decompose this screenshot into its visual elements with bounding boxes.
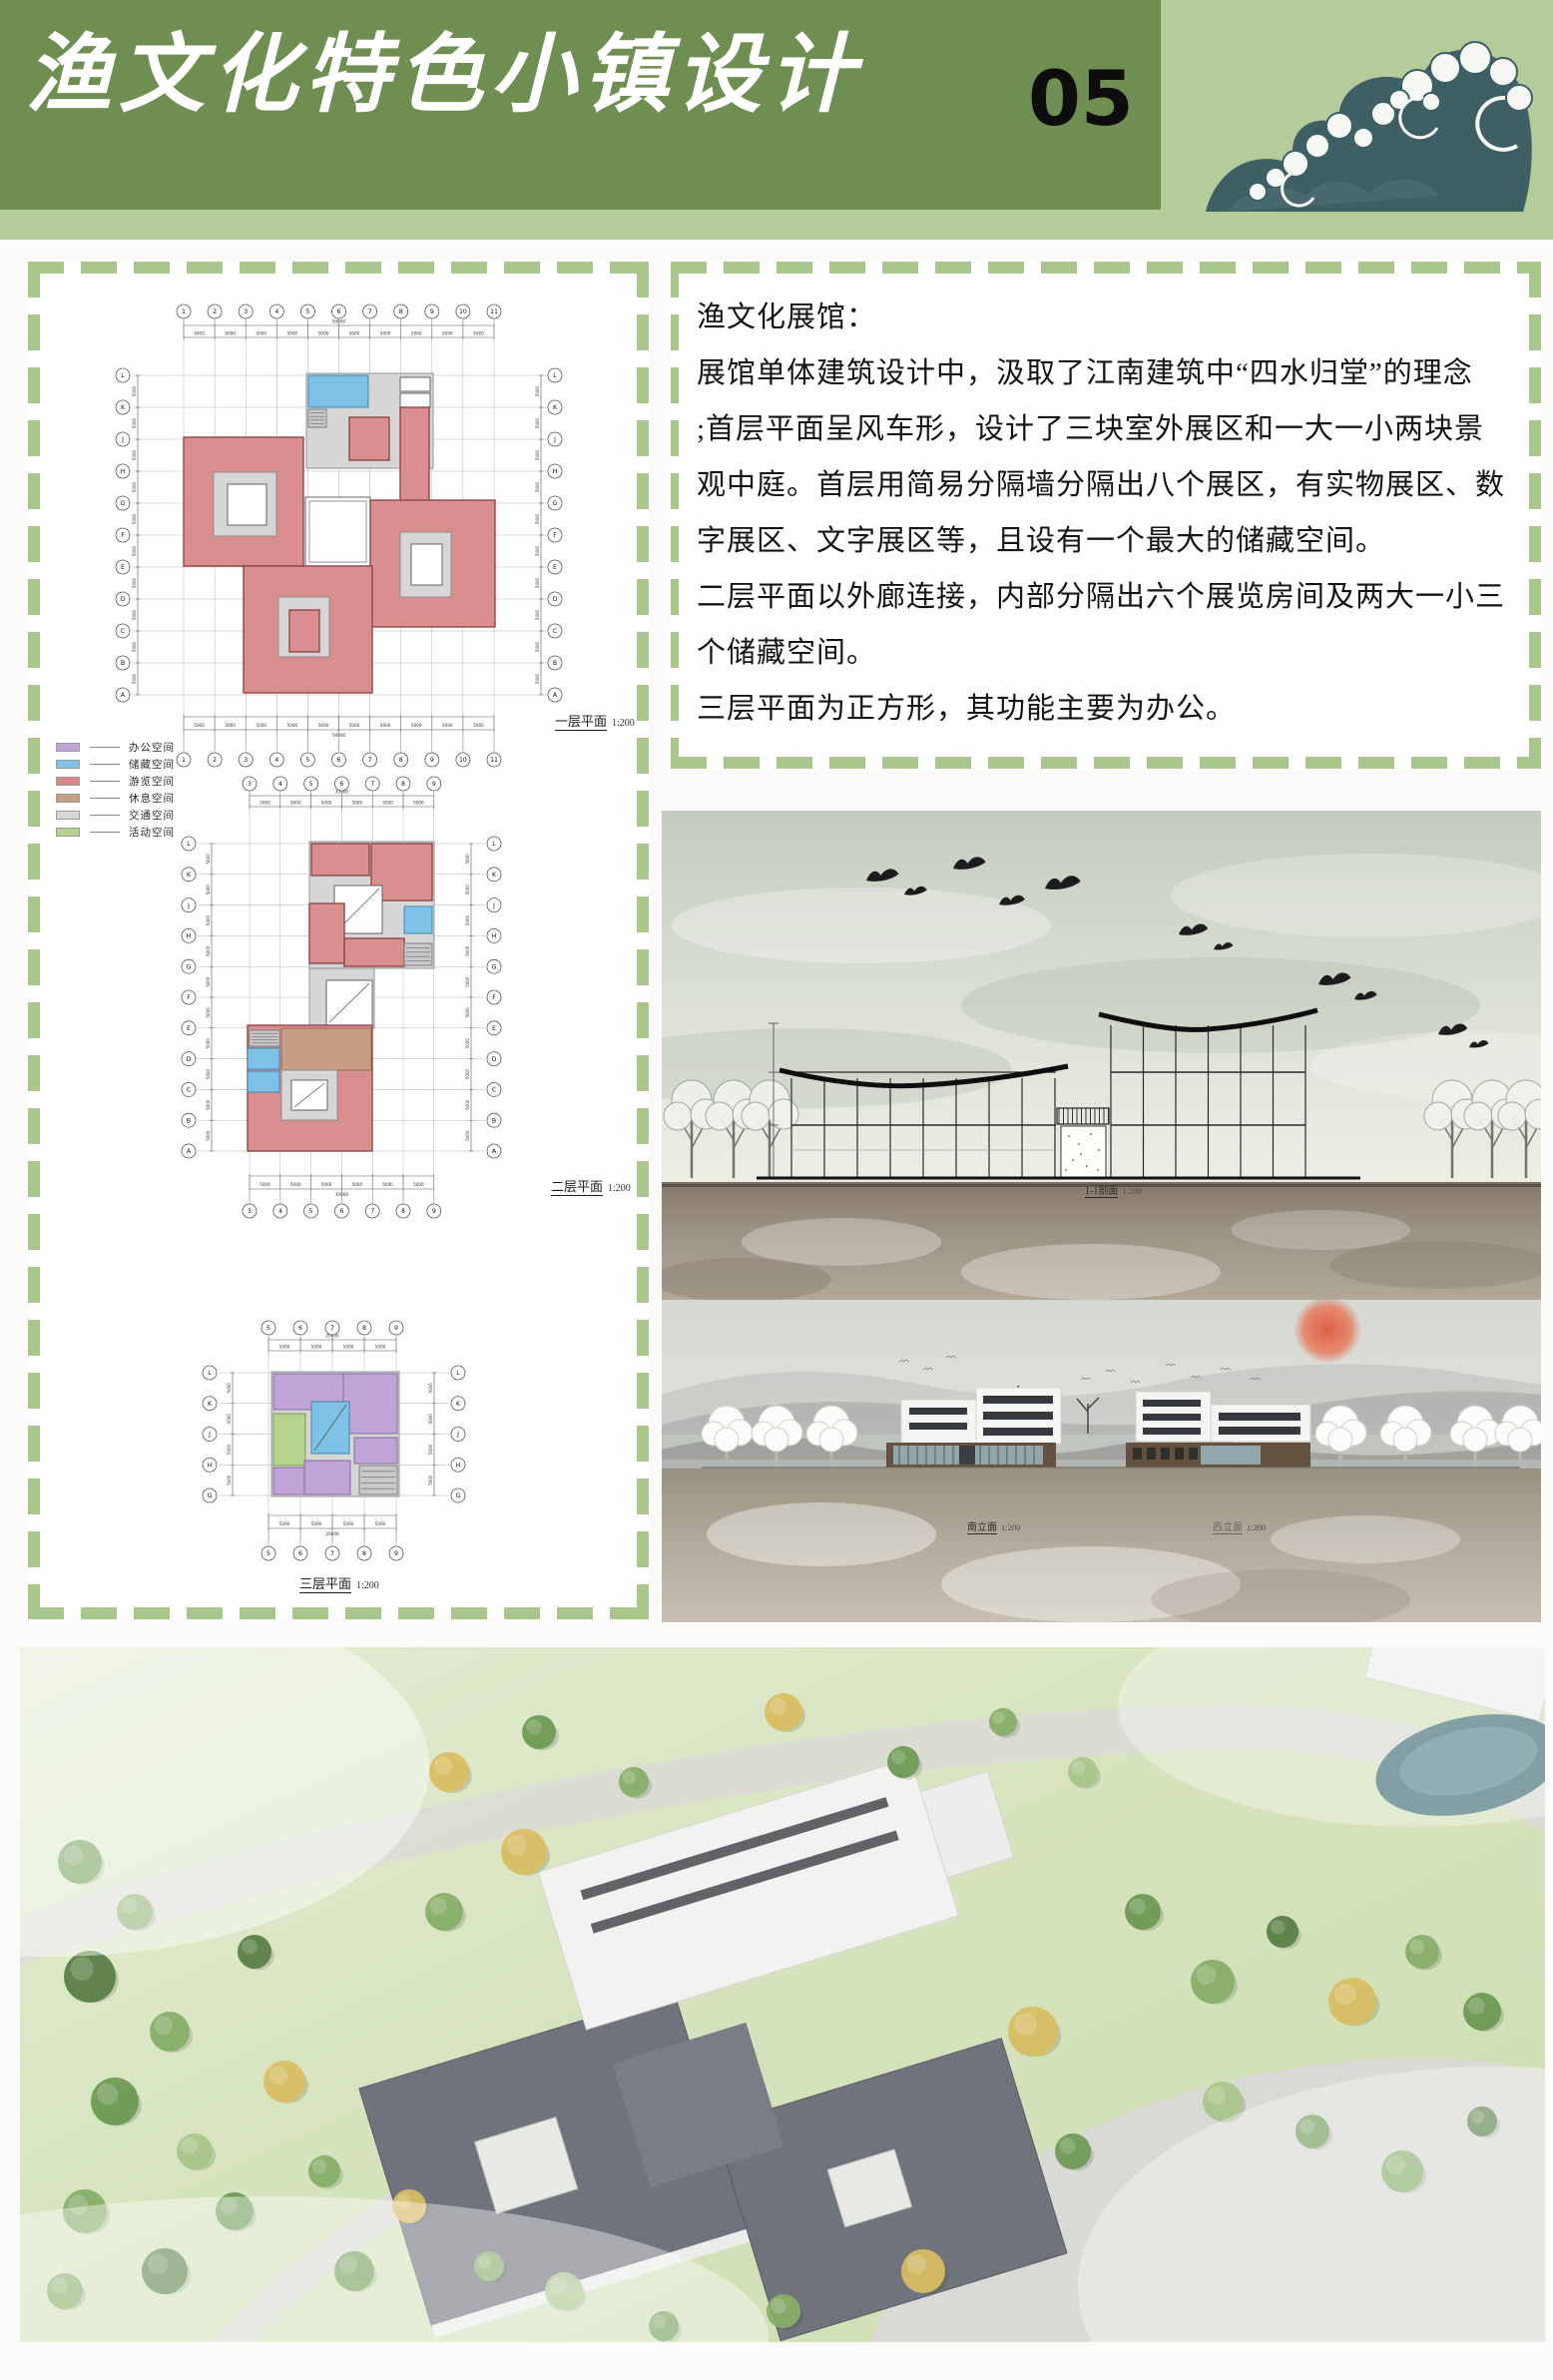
svg-text:5000: 5000 [132,417,137,428]
description-line: 字展区、文字展区等，且设有一个最大的储藏空间。 [697,513,1529,569]
plan-legend: 办公空间 储藏空间 游览空间 休息空间 交通空间 活动空间 [56,739,175,841]
svg-text:5000: 5000 [321,1182,332,1187]
svg-text:5: 5 [309,1208,313,1215]
svg-text:5000: 5000 [382,1182,393,1187]
svg-text:8: 8 [399,308,403,315]
svg-text:G: G [492,963,497,970]
svg-text:J: J [553,436,556,443]
aerial-rendering [20,1647,1545,2342]
svg-text:7: 7 [330,1325,334,1332]
west-elevation-caption: 西立面1:200 [1213,1518,1266,1533]
svg-text:B: B [121,660,125,667]
svg-text:E: E [187,1025,191,1032]
svg-text:5000: 5000 [279,1345,290,1350]
svg-text:5000: 5000 [132,545,137,556]
svg-text:L: L [208,1370,212,1377]
svg-text:4: 4 [274,308,278,315]
svg-text:6: 6 [298,1550,302,1557]
svg-text:B: B [187,1117,191,1124]
svg-text:5000: 5000 [206,1099,211,1110]
svg-text:5000: 5000 [227,1383,232,1394]
svg-text:5: 5 [266,1550,270,1557]
legend-line [90,764,120,765]
description-line: 观中庭。首层用简易分隔墙分隔出八个展区，有实物展区、数 [697,457,1529,513]
svg-text:5: 5 [266,1325,270,1332]
svg-text:D: D [492,1056,497,1063]
svg-text:6: 6 [339,781,343,788]
svg-text:8: 8 [362,1325,366,1332]
svg-text:4: 4 [278,1208,282,1215]
svg-text:B: B [553,660,557,667]
plan3-caption: 三层平面1:200 [299,1573,379,1592]
svg-text:5000: 5000 [256,331,266,336]
legend-label: 办公空间 [129,740,175,755]
svg-text:5000: 5000 [375,1345,386,1350]
facade-rendering: 南立面1:200 西立面1:200 [662,1300,1541,1622]
svg-text:5000: 5000 [343,1345,354,1350]
legend-item: 游览空间 [56,773,175,790]
svg-text:5000: 5000 [442,331,453,336]
svg-text:5000: 5000 [535,545,540,556]
svg-text:5000: 5000 [132,481,137,492]
description-line: ;首层平面呈风车形，设计了三块室外展区和一大一小两块景 [697,401,1529,457]
legend-swatch [56,811,80,820]
section-rendering: 1-1剖面1:200 [662,811,1541,1300]
svg-text:5000: 5000 [287,723,298,728]
panel-border-top [671,262,1541,274]
svg-text:5000: 5000 [535,481,540,492]
page-number: 05 [1028,54,1134,143]
legend-swatch [56,743,80,752]
svg-text:8: 8 [401,1208,405,1215]
svg-text:5: 5 [305,308,309,315]
description-line: 展馆单体建筑设计中，汲取了江南建筑中“四水归堂”的理念 [697,345,1529,401]
svg-text:3: 3 [248,1208,252,1215]
svg-text:5000: 5000 [413,801,424,806]
svg-text:5000: 5000 [380,723,391,728]
svg-text:5000: 5000 [132,641,137,652]
svg-text:5000: 5000 [132,609,137,620]
legend-swatch [56,794,80,803]
section-caption: 1-1剖面1:200 [1085,1182,1142,1197]
svg-text:5000: 5000 [349,331,360,336]
svg-text:9: 9 [430,308,434,315]
description-text: 渔文化展馆： 展馆单体建筑设计中，汲取了江南建筑中“四水归堂”的理念 ;首层平面… [697,290,1529,737]
svg-text:C: C [553,628,557,635]
svg-text:5000: 5000 [132,513,137,524]
svg-text:5000: 5000 [132,673,137,684]
svg-text:5000: 5000 [535,609,540,620]
svg-text:5000: 5000 [206,885,211,895]
svg-text:9: 9 [394,1550,398,1557]
svg-text:5000: 5000 [259,801,270,806]
legend-item: 休息空间 [56,790,175,807]
svg-text:7: 7 [370,781,374,788]
svg-text:5000: 5000 [227,1444,232,1455]
svg-text:5000: 5000 [535,417,540,428]
svg-text:D: D [553,596,558,603]
svg-text:7: 7 [330,1550,334,1557]
legend-line [90,832,120,833]
svg-text:H: H [121,468,126,475]
svg-text:5000: 5000 [206,976,211,987]
legend-swatch [56,828,80,837]
panel-border-left [671,262,679,769]
description-line: 三层平面为正方形，其功能主要为办公。 [697,681,1529,737]
svg-text:5000: 5000 [287,331,298,336]
svg-text:6: 6 [298,1325,302,1332]
legend-item: 活动空间 [56,824,175,841]
svg-text:5000: 5000 [321,801,332,806]
svg-text:G: G [456,1492,461,1499]
legend-line [90,798,120,799]
panel-border-bottom [671,757,1541,769]
svg-text:5000: 5000 [227,1414,232,1425]
svg-text:H: H [187,933,192,940]
svg-text:5000: 5000 [206,1038,211,1049]
svg-text:9: 9 [432,1208,436,1215]
floor-plan-level1: 5000500050005000500050005000500050005000… [92,268,636,772]
svg-text:5000: 5000 [535,449,540,460]
svg-text:J: J [208,1432,211,1439]
svg-text:E: E [553,564,557,571]
legend-line [90,747,120,748]
svg-text:5000: 5000 [206,854,211,865]
svg-text:5000: 5000 [206,914,211,925]
svg-text:5000: 5000 [132,449,137,460]
panel-border-right [1529,262,1541,769]
svg-text:5000: 5000 [227,1475,232,1486]
wave-illustration-icon [1188,6,1537,218]
description-title: 渔文化展馆： [697,290,1529,345]
svg-text:5000: 5000 [413,1182,424,1187]
legend-swatch [56,760,80,769]
svg-text:5000: 5000 [465,854,470,865]
svg-text:10: 10 [459,308,467,315]
svg-text:5000: 5000 [382,801,393,806]
svg-text:D: D [121,596,126,603]
svg-text:F: F [121,532,125,539]
svg-text:4: 4 [278,781,282,788]
legend-label: 游览空间 [129,774,175,789]
svg-text:5000: 5000 [206,1068,211,1079]
description-line: 二层平面以外廊连接，内部分隔出六个展览房间及两大一小三 [697,569,1529,625]
svg-text:7: 7 [368,308,372,315]
svg-text:5000: 5000 [535,385,540,396]
panel-border-left [28,262,40,1619]
svg-text:5000: 5000 [351,1182,362,1187]
svg-text:5000: 5000 [465,1099,470,1110]
svg-text:H: H [456,1462,461,1469]
svg-text:9: 9 [432,781,436,788]
plan1-caption: 一层平面1:200 [555,711,635,730]
svg-text:5000: 5000 [206,1130,211,1141]
svg-text:5000: 5000 [318,331,329,336]
svg-text:8: 8 [362,1550,366,1557]
svg-text:J: J [121,436,124,443]
svg-text:2: 2 [213,308,217,315]
svg-text:F: F [187,994,191,1001]
panel-border-right [637,262,649,1619]
svg-text:9: 9 [394,1325,398,1332]
svg-text:5000: 5000 [465,945,470,956]
svg-text:5000: 5000 [535,673,540,684]
svg-text:G: G [553,500,558,507]
svg-text:B: B [492,1117,496,1124]
legend-line [90,815,120,816]
svg-text:L: L [492,841,496,848]
svg-text:5000: 5000 [465,1130,470,1141]
svg-text:5000: 5000 [194,723,205,728]
svg-text:5: 5 [309,781,313,788]
svg-text:5000: 5000 [194,331,205,336]
svg-text:5000: 5000 [375,1521,386,1526]
svg-text:G: G [208,1492,213,1499]
svg-text:H: H [492,933,497,940]
svg-text:J: J [492,902,495,909]
svg-text:F: F [492,994,496,1001]
svg-text:L: L [553,372,557,379]
svg-text:5000: 5000 [225,723,236,728]
svg-text:5000: 5000 [442,723,453,728]
svg-text:5000: 5000 [279,1521,290,1526]
svg-text:5000: 5000 [290,1182,301,1187]
svg-text:5000: 5000 [428,1414,433,1425]
svg-text:5000: 5000 [473,723,484,728]
svg-text:5000: 5000 [473,331,484,336]
legend-item: 交通空间 [56,807,175,824]
svg-text:5000: 5000 [465,1007,470,1018]
legend-item: 办公空间 [56,739,175,756]
svg-text:6: 6 [339,1208,343,1215]
poster-page: 渔文化特色小镇设计 05 50005000500050005000500 [0,0,1553,2380]
svg-text:11: 11 [490,308,498,315]
svg-text:5000: 5000 [311,1345,322,1350]
svg-text:5000: 5000 [290,801,301,806]
svg-text:5000: 5000 [380,331,391,336]
svg-text:E: E [121,564,125,571]
svg-text:5000: 5000 [428,1383,433,1394]
svg-text:C: C [187,1087,191,1094]
svg-text:5000: 5000 [351,801,362,806]
svg-text:5000: 5000 [132,385,137,396]
svg-text:C: C [121,628,125,635]
svg-text:5000: 5000 [311,1521,322,1526]
svg-text:J: J [456,1432,459,1439]
svg-text:8: 8 [401,781,405,788]
svg-text:5000: 5000 [428,1444,433,1455]
south-elevation-caption: 南立面1:200 [967,1518,1020,1533]
svg-text:L: L [187,841,191,848]
svg-text:L: L [456,1370,460,1377]
svg-text:F: F [553,532,557,539]
svg-text:5000: 5000 [343,1521,354,1526]
svg-text:5000: 5000 [318,723,329,728]
legend-label: 储藏空间 [129,757,175,772]
svg-text:5000: 5000 [535,641,540,652]
svg-text:D: D [187,1056,192,1063]
svg-text:G: G [121,500,126,507]
svg-text:5000: 5000 [225,331,236,336]
page-title: 渔文化特色小镇设计 [26,4,861,129]
svg-text:5000: 5000 [535,577,540,588]
floor-plan-level3: 5000500050005000200005000500050005000200… [175,1306,474,1615]
svg-text:3: 3 [244,308,248,315]
svg-text:5000: 5000 [259,1182,270,1187]
svg-text:5000: 5000 [465,1068,470,1079]
svg-text:5000: 5000 [349,723,360,728]
svg-text:5000: 5000 [465,914,470,925]
svg-text:5000: 5000 [206,945,211,956]
svg-text:H: H [553,468,558,475]
plan2-caption: 二层平面1:200 [551,1176,631,1195]
svg-text:5000: 5000 [428,1475,433,1486]
svg-text:7: 7 [370,1208,374,1215]
svg-text:6: 6 [337,308,341,315]
floor-plan-level2: 5000500050005000500050003000050005000500… [150,759,549,1228]
legend-line [90,781,120,782]
svg-text:E: E [492,1025,496,1032]
svg-text:5000: 5000 [256,723,266,728]
svg-text:5000: 5000 [411,723,422,728]
svg-text:J: J [187,902,190,909]
svg-text:C: C [492,1087,496,1094]
legend-item: 储藏空间 [56,756,175,773]
svg-text:1: 1 [182,308,186,315]
svg-text:5000: 5000 [465,885,470,895]
svg-text:5000: 5000 [465,1038,470,1049]
svg-text:H: H [208,1462,213,1469]
legend-label: 休息空间 [129,791,175,806]
legend-label: 交通空间 [129,808,175,823]
legend-label: 活动空间 [129,825,175,840]
svg-text:3: 3 [248,781,252,788]
description-line: 个储藏空间。 [697,625,1529,681]
svg-text:5000: 5000 [206,1007,211,1018]
svg-text:G: G [187,963,192,970]
svg-text:5000: 5000 [411,331,422,336]
svg-text:L: L [121,372,125,379]
svg-text:5000: 5000 [132,577,137,588]
svg-text:5000: 5000 [465,976,470,987]
svg-text:5000: 5000 [535,513,540,524]
legend-swatch [56,777,80,786]
